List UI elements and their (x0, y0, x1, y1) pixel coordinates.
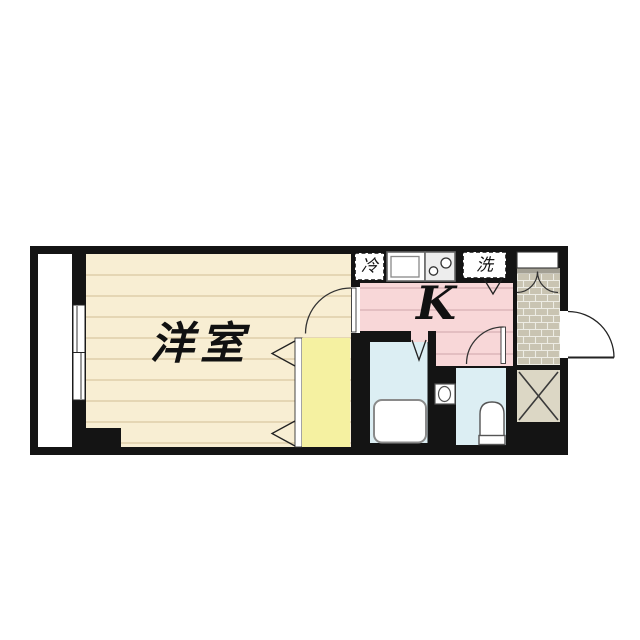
refrigerator-space: 冷 (355, 253, 384, 280)
toilet-bowl (480, 402, 504, 436)
bathtub (374, 400, 426, 443)
pipe-shaft (517, 370, 560, 422)
genkan-tile (517, 274, 560, 366)
toilet-room (456, 368, 506, 445)
sink-basin (391, 257, 419, 278)
balcony-window (73, 305, 85, 400)
burner-large (441, 258, 451, 268)
washer-label: 洗 (476, 256, 495, 276)
washbasin (435, 384, 455, 404)
floor-plan-drawing: 冷 洗 (0, 0, 640, 640)
entrance-door (560, 311, 614, 358)
entrance-genkan (517, 252, 560, 365)
floor-plan-page: 冷 洗 (0, 0, 640, 640)
refrigerator-label: 冷 (361, 257, 380, 277)
toilet-tank (479, 436, 505, 445)
wall-stub-bottom-left (72, 428, 121, 447)
burner-small (429, 267, 437, 275)
entrance-door-arc (568, 312, 614, 358)
western-room-label: 洋室 (150, 319, 251, 370)
balcony (38, 254, 72, 447)
entrance-storage (517, 252, 558, 268)
kitchen-label: K (414, 276, 458, 330)
bathroom (370, 340, 428, 443)
closet-door-line (295, 338, 302, 447)
